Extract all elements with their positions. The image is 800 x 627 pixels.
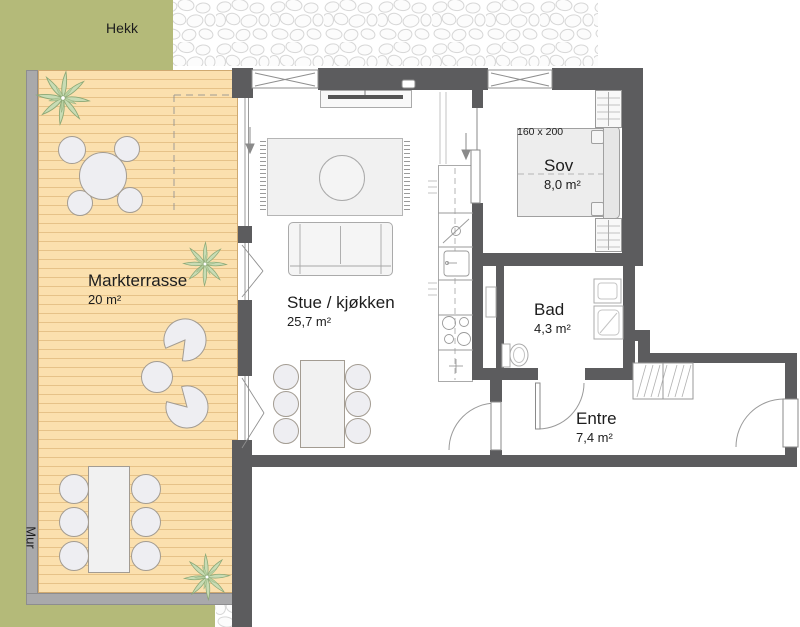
terrace-side-table [141,361,173,393]
duct [486,287,496,317]
terrace-dining-chair [59,474,89,504]
wall [238,226,252,243]
bed-size-label: 160 x 200 [517,126,563,138]
wall [238,300,252,376]
retaining-wall-bottom [26,593,233,605]
room-label-entry: Entre 7,4 m² [576,409,617,445]
bed-headboard [603,126,620,219]
room-label-bedroom: Sov 8,0 m² [544,156,581,192]
terrace-dining-chair [59,541,89,571]
wall [232,455,797,467]
dining-chair [273,418,299,444]
terrace-dining-chair [59,507,89,537]
dining-chair [345,391,371,417]
wall [490,373,502,402]
room-label-terrace: Markterrasse 20 m² [88,271,187,307]
room-name: Entre [576,409,617,429]
dining-chair [273,391,299,417]
tv-bench [320,90,412,108]
wall [318,68,488,90]
room-name: Sov [544,156,581,176]
sink-icon [594,279,621,303]
room-area: 8,0 m² [544,178,581,193]
wardrobe [595,90,622,128]
retaining-wall-label: Mur [23,522,38,552]
window [488,70,552,88]
room-name: Markterrasse [88,271,187,291]
rug-fringe [404,141,410,213]
lawn-bottom [0,605,215,627]
room-area: 7,4 m² [576,431,617,446]
bed-pillow [591,202,604,216]
dining-chair [345,418,371,444]
sofa [288,222,393,276]
terrace-dining-table [88,466,130,573]
wall [622,90,643,258]
wall [232,68,253,98]
wall [472,88,483,108]
terrace-dining-chair [131,474,161,504]
room-label-living-kitchen: Stue / kjøkken 25,7 m² [287,293,395,329]
terrace-round-table [79,152,127,200]
wall [490,450,502,458]
room-area: 4,3 m² [534,322,571,337]
floor-plan: Hekk Mur Markterrasse 20 m² Stue / kjøkk… [0,0,800,627]
wall [623,330,650,341]
room-area: 20 m² [88,293,187,308]
terrace-dining-chair [131,507,161,537]
wall [623,266,635,380]
kitchen-counter [438,165,473,382]
room-area: 25,7 m² [287,315,395,330]
coffee-table [319,155,365,201]
window [252,70,318,88]
shower-icon [594,306,623,339]
wall [638,353,797,363]
room-label-bathroom: Bad 4,3 m² [534,300,571,336]
hedge-label: Hekk [95,20,149,36]
dining-chair [273,364,299,390]
entry-wardrobe [633,363,693,399]
dining-table [300,360,345,448]
terrace-chair [58,136,86,164]
wall [472,368,538,380]
wall [232,440,252,627]
wall [477,253,643,266]
dining-chair [345,364,371,390]
terrace-dining-chair [131,541,161,571]
room-name: Stue / kjøkken [287,293,395,313]
wall [472,203,483,373]
wall [496,266,504,380]
wall [785,363,797,399]
wall [585,368,635,380]
bed-pillow [591,130,604,144]
wall [552,68,643,90]
toilet-icon [502,344,528,367]
room-name: Bad [534,300,571,320]
wardrobe [595,218,622,252]
rug-fringe [260,141,266,213]
